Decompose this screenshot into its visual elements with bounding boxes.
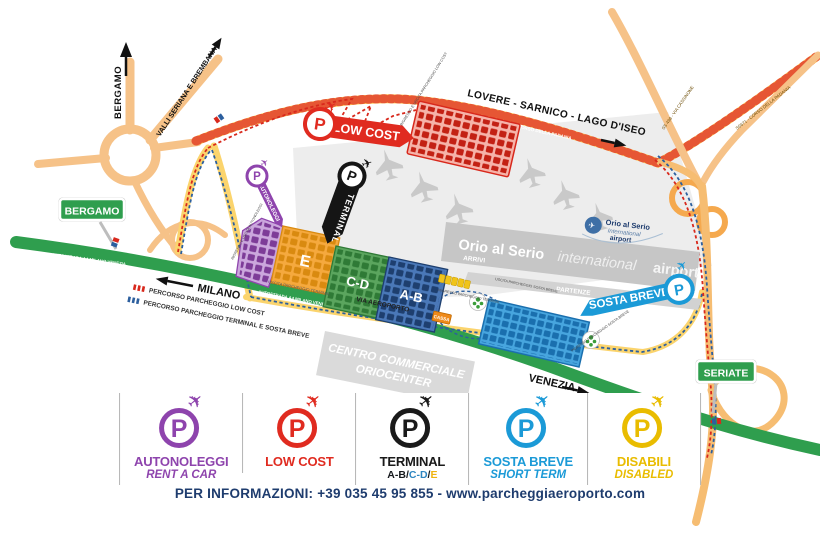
parking-p-icon: P xyxy=(289,415,306,443)
zone-e: E xyxy=(430,469,437,481)
parking-legend: ✈ P AUTONOLEGGI RENT A CAR ✈ P LOW COST … xyxy=(119,393,701,485)
parking-p-icon: P xyxy=(634,415,651,443)
parking-logo-autonoleggi-icon: ✈ P xyxy=(154,395,208,451)
arrow-milano-icon xyxy=(155,274,194,290)
parking-logo-lowcost-icon: ✈ P xyxy=(272,395,326,451)
plane-icon: ✈ xyxy=(588,221,596,231)
legend-sub-sostabreve: SHORT TERM xyxy=(490,469,566,481)
legend-title-lowcost: LOW COST xyxy=(265,454,333,469)
zone-ab: A-B xyxy=(387,469,406,481)
sign-seriate: SERIATE xyxy=(696,360,757,414)
legend-sub-disabili: DISABLED xyxy=(615,469,674,481)
legend-item-sostabreve: ✈ P SOSTA BREVE SHORT TERM xyxy=(468,393,587,485)
bergamo-sign-label: BERGAMO xyxy=(65,206,120,218)
info-line: PER INFORMAZIONI: +39 035 45 95 855 - ww… xyxy=(0,486,820,501)
legend-terminal-zones: A-B/C-D/E xyxy=(387,469,437,481)
parking-logo-sostabreve-icon: ✈ P xyxy=(501,395,555,451)
legend-title-terminal: TERMINAL xyxy=(380,454,446,469)
legend-sub-autonoleggi: RENT A CAR xyxy=(146,469,216,481)
autonoleggi-label: AUTONOLEGGI xyxy=(257,183,281,223)
legend-item-autonoleggi: ✈ P AUTONOLEGGI RENT A CAR xyxy=(119,393,242,485)
parking-p-icon: P xyxy=(171,415,188,443)
lot-sosta-breve xyxy=(479,299,590,367)
legend-title-sostabreve: SOSTA BREVE xyxy=(483,454,573,469)
legend-title-autonoleggi: AUTONOLEGGI xyxy=(134,454,228,469)
ss498-label: SS 498 - VIA CASSINONE xyxy=(661,85,695,131)
parking-p-icon: P xyxy=(518,415,535,443)
parking-logo-disabili-icon: ✈ P xyxy=(617,395,671,451)
seriate-sign-label: SERIATE xyxy=(704,368,749,380)
legend-item-lowcost: ✈ P LOW COST xyxy=(242,393,355,473)
parking-logo-terminal-icon: ✈ P xyxy=(385,395,439,451)
roundabout xyxy=(104,129,156,181)
parking-p-icon: P xyxy=(402,415,419,443)
legend-title-disabili: DISABILI xyxy=(617,454,671,469)
parking-p-icon: P xyxy=(253,171,261,183)
zone-cd: C-D xyxy=(409,469,428,481)
bergamo-direction-label: BERGAMO xyxy=(113,66,124,119)
legend-item-terminal: ✈ P TERMINAL A-B/C-D/E xyxy=(355,393,468,485)
valli-direction-label: VALLI SERIANA E BREMBANA xyxy=(154,45,219,138)
legend-item-disabili: ✈ P DISABILI DISABLED xyxy=(587,393,701,485)
